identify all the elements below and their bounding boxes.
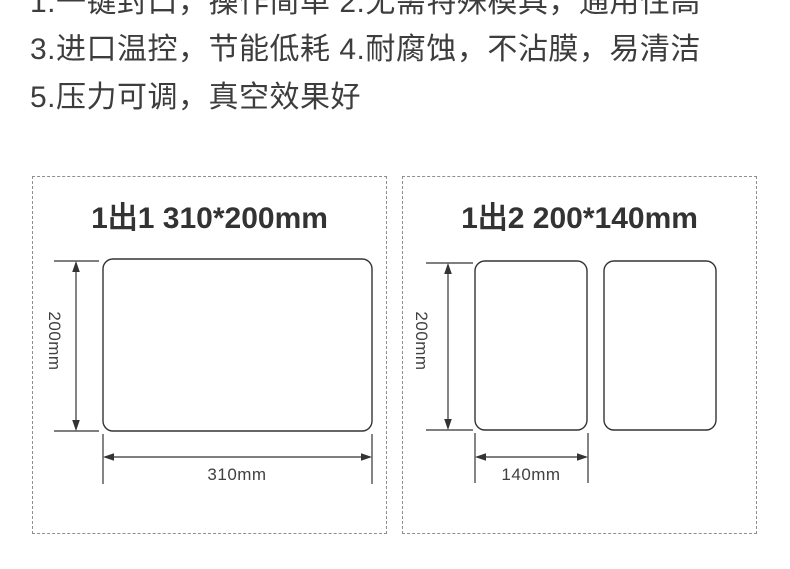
arrow-right-icon bbox=[577, 453, 588, 461]
width-dimension-label: 140mm bbox=[481, 465, 581, 485]
feature-line-2: 3.进口温控，节能低耗 4.耐腐蚀，不沾膜，易清洁 bbox=[30, 33, 701, 67]
arrow-left-icon bbox=[475, 453, 486, 461]
feature-line-3: 5.压力可调，真空效果好 bbox=[30, 81, 361, 115]
size-spec-panel-1out2: 1出2 200*140mm 200mm 140mm bbox=[402, 176, 757, 534]
pouch-outline bbox=[103, 259, 372, 431]
arrow-down-icon bbox=[72, 420, 80, 431]
arrow-up-icon bbox=[444, 263, 452, 274]
arrow-down-icon bbox=[444, 419, 452, 430]
arrow-right-icon bbox=[361, 453, 372, 461]
height-dimension-label: 200mm bbox=[44, 311, 64, 371]
arrow-left-icon bbox=[103, 453, 114, 461]
size-spec-panel-1out1: 1出1 310*200mm 200mm 310mm bbox=[32, 176, 387, 534]
feature-line-1: 1.一键封口，操作简单 2.无需特殊模具，通用性高 bbox=[30, 0, 701, 20]
height-dimension-label: 200mm bbox=[411, 311, 431, 371]
arrow-up-icon bbox=[72, 261, 80, 272]
width-dimension-label: 310mm bbox=[187, 465, 287, 485]
product-detail-image: 1.一键封口，操作简单 2.无需特殊模具，通用性高 3.进口温控，节能低耗 4.… bbox=[0, 0, 790, 569]
pouch-outline-1 bbox=[475, 261, 587, 430]
pouch-outline-2 bbox=[604, 261, 716, 430]
